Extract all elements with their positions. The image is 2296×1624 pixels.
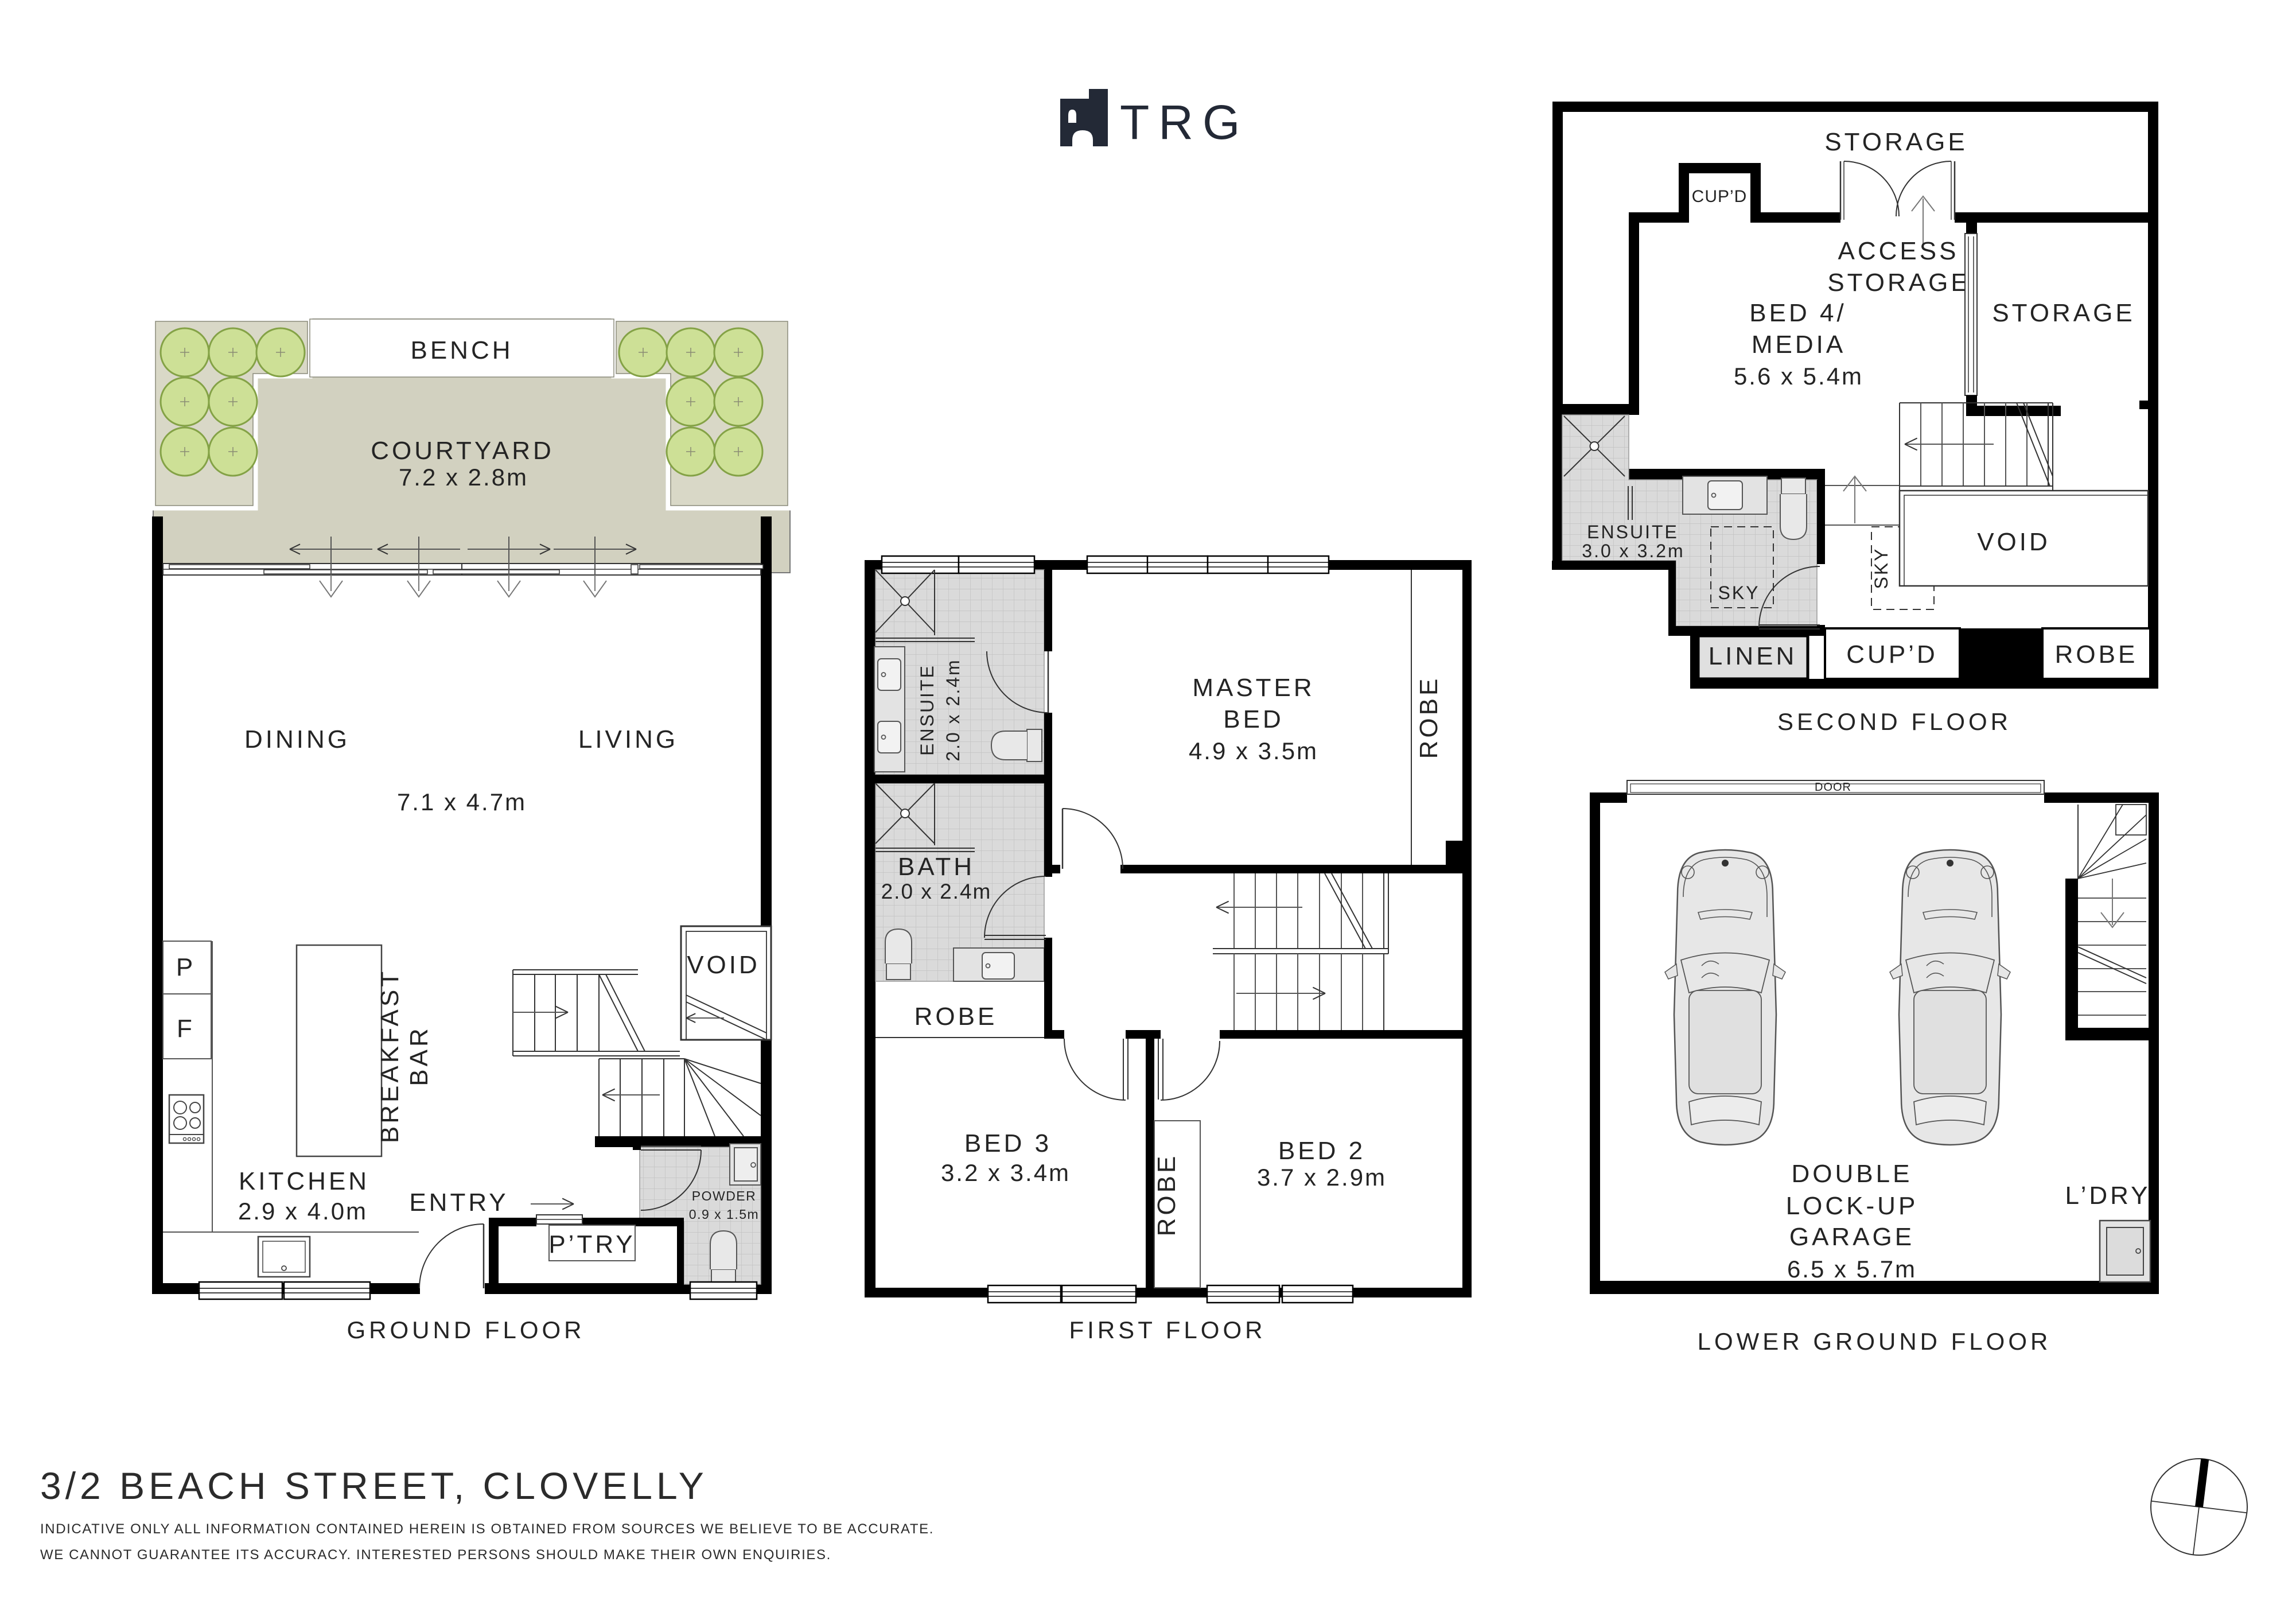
svg-text:ROBE: ROBE <box>2055 640 2138 669</box>
svg-text:MEDIA: MEDIA <box>1752 331 1846 359</box>
svg-text:BAR: BAR <box>405 1025 433 1086</box>
svg-text:CUP’D: CUP’D <box>1692 187 1748 206</box>
svg-text:2.0 x 2.4m: 2.0 x 2.4m <box>943 658 963 761</box>
svg-text:FIRST FLOOR: FIRST FLOOR <box>1069 1316 1266 1343</box>
svg-text:P: P <box>176 953 196 981</box>
svg-text:DOUBLE: DOUBLE <box>1792 1160 1913 1188</box>
svg-text:ROBE: ROBE <box>914 1003 998 1031</box>
svg-text:BED 4/: BED 4/ <box>1749 299 1846 327</box>
svg-text:F: F <box>177 1015 195 1043</box>
svg-text:BED 3: BED 3 <box>964 1129 1052 1157</box>
svg-text:BED 2: BED 2 <box>1278 1137 1365 1165</box>
svg-text:POWDER: POWDER <box>692 1188 757 1203</box>
svg-text:BENCH: BENCH <box>410 336 513 364</box>
svg-text:SKY: SKY <box>1871 547 1892 589</box>
svg-text:TRG: TRG <box>1120 95 1249 149</box>
svg-text:ROBE: ROBE <box>1415 676 1443 759</box>
svg-text:SECOND FLOOR: SECOND FLOOR <box>1777 708 2011 735</box>
svg-text:ENSUITE: ENSUITE <box>917 664 937 756</box>
svg-text:6.5 x 5.7m: 6.5 x 5.7m <box>1787 1256 1917 1283</box>
svg-text:VOID: VOID <box>1977 528 2050 556</box>
svg-text:3.7 x 2.9m: 3.7 x 2.9m <box>1257 1164 1387 1191</box>
svg-text:ENSUITE: ENSUITE <box>1587 522 1679 542</box>
svg-text:L’DRY: L’DRY <box>2065 1182 2151 1210</box>
svg-text:3.0 x 3.2m: 3.0 x 3.2m <box>1582 541 1684 561</box>
svg-text:BED: BED <box>1223 705 1283 733</box>
svg-text:LIVING: LIVING <box>578 725 678 753</box>
svg-text:3.2 x 3.4m: 3.2 x 3.4m <box>941 1159 1071 1186</box>
svg-text:BREAKFAST: BREAKFAST <box>376 969 404 1143</box>
svg-text:7.2 x 2.8m: 7.2 x 2.8m <box>399 464 528 491</box>
svg-text:VOID: VOID <box>687 951 760 979</box>
svg-text:DOOR: DOOR <box>1815 781 1851 794</box>
svg-text:5.6 x 5.4m: 5.6 x 5.4m <box>1734 363 1863 390</box>
svg-text:2.9 x 4.0m: 2.9 x 4.0m <box>238 1198 368 1225</box>
svg-text:COURTYARD: COURTYARD <box>371 437 554 465</box>
svg-text:7.1 x 4.7m: 7.1 x 4.7m <box>397 788 527 815</box>
svg-text:LOWER GROUND FLOOR: LOWER GROUND FLOOR <box>1698 1328 2052 1355</box>
svg-text:ENTRY: ENTRY <box>409 1188 508 1217</box>
svg-text:INDICATIVE ONLY ALL INFORMATIO: INDICATIVE ONLY ALL INFORMATION CONTAINE… <box>40 1521 934 1537</box>
svg-text:STORAGE: STORAGE <box>1992 299 2135 327</box>
svg-text:3/2 BEACH STREET, CLOVELLY: 3/2 BEACH STREET, CLOVELLY <box>40 1464 708 1507</box>
svg-text:MASTER: MASTER <box>1192 674 1314 702</box>
svg-text:P’TRY: P’TRY <box>548 1230 635 1258</box>
svg-text:STORAGE: STORAGE <box>1824 128 1967 156</box>
svg-text:ACCESS: ACCESS <box>1838 237 1959 265</box>
svg-text:4.9 x 3.5m: 4.9 x 3.5m <box>1189 737 1318 764</box>
svg-text:DINING: DINING <box>244 725 350 753</box>
svg-text:LINEN: LINEN <box>1709 642 1797 670</box>
svg-text:BATH: BATH <box>898 853 975 881</box>
svg-text:2.0 x 2.4m: 2.0 x 2.4m <box>881 880 992 903</box>
svg-text:0.9 x 1.5m: 0.9 x 1.5m <box>689 1207 759 1222</box>
svg-text:CUP’D: CUP’D <box>1846 640 1937 669</box>
svg-text:STORAGE: STORAGE <box>1827 269 1970 297</box>
svg-text:LOCK-UP: LOCK-UP <box>1786 1192 1918 1220</box>
svg-text:GROUND FLOOR: GROUND FLOOR <box>347 1316 585 1343</box>
svg-text:SKY: SKY <box>1718 582 1760 603</box>
svg-text:GARAGE: GARAGE <box>1789 1223 1914 1251</box>
svg-text:ROBE: ROBE <box>1153 1153 1181 1237</box>
svg-text:WE CANNOT GUARANTEE ITS ACCURA: WE CANNOT GUARANTEE ITS ACCURACY. INTERE… <box>40 1547 831 1563</box>
svg-text:KITCHEN: KITCHEN <box>239 1167 369 1195</box>
